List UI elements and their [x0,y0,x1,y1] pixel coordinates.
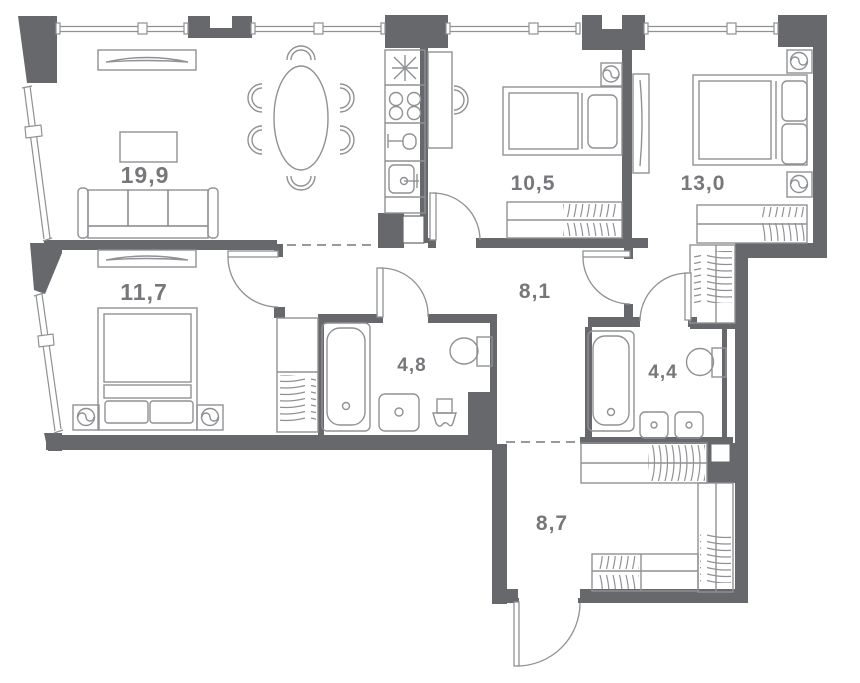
room-living [78,46,425,238]
wall-interior [44,240,277,250]
wardrobe-icon [592,554,698,591]
toilet-icon [687,348,727,377]
wall-pier [385,15,448,48]
door-icon [430,193,480,240]
door-jamb [578,598,583,603]
bed-icon [98,308,197,430]
tv-console-icon [98,250,196,267]
bidet-icon [433,399,456,426]
wall-entry-left [492,444,507,604]
window-icon [251,23,385,34]
washbasin-icon [379,394,419,431]
door-jamb [624,304,633,317]
nightstand-lamp-icon [787,172,812,197]
bed-icon [693,75,807,165]
room-bedroom-1 [73,250,318,432]
mirror-icon [633,74,649,173]
wall-bathroom2-right-thin [722,328,727,438]
room-label-bathroom-2: 4,4 [648,362,677,383]
door-icon [583,251,630,304]
pier-notch [602,15,622,29]
wall-bathroom1-right [490,323,497,393]
wall-bathroom1-top [318,314,383,323]
bed-icon [503,87,622,155]
wall-kitchen-block [378,213,404,248]
nightstand-lamp-icon [787,50,812,73]
wall-bathroom1-top [428,314,497,323]
nightstand-lamp-icon [601,63,622,86]
toilet-icon [450,337,492,366]
kitchen-sink-icon [389,165,419,193]
hob-burners-icon [390,93,421,120]
wardrobe-icon [277,318,318,432]
nightstand-lamp-icon [73,405,99,430]
wardrobe-icon [698,483,733,592]
window-icon [34,293,63,433]
tv-console-icon [98,50,196,70]
washbasin-icon [675,412,703,438]
wall-bathroom2-top [588,317,640,327]
pier-notch [210,16,232,28]
wardrobe-icon [581,443,707,483]
door-jamb [274,307,285,318]
wall-interior [483,238,622,248]
room-label-bedroom-1: 11,7 [120,279,168,305]
room-bathroom-2 [588,331,726,438]
room-bedroom-2 [428,52,622,238]
window-icon [446,23,580,34]
door-icon [228,251,278,307]
dining-table-icon [274,66,328,170]
wall-step-right [735,243,827,258]
bathtub-icon [322,323,370,431]
sofa-icon [78,188,218,238]
vent-shaft-icon [468,392,497,435]
wall-outer-right [813,15,827,245]
room-label-bedroom-3: 13,0 [681,172,726,195]
wardrobe-icon [507,202,622,238]
room-bathroom-1 [322,323,492,431]
kitchen-unit [385,50,425,213]
wall-bottom-left [46,435,497,450]
nightstand-lamp-icon [197,405,223,430]
floor-plan: 19,9 11,7 [0,0,860,683]
window-icon [56,23,188,34]
vent-shaft-niche [403,216,424,243]
door-icon [377,268,428,317]
vent-shaft-niche [711,444,730,462]
bathtub-icon [588,331,634,431]
stove-icon [392,55,418,81]
dining-chair-icon [248,46,354,190]
wall-outer-right-lower [735,245,748,602]
room-label-entry-hall: 8,7 [536,512,568,535]
room-label-living: 19,9 [121,162,170,188]
walls [18,15,827,604]
wall-pier-slanted [30,243,62,294]
wall-kitchen-thin [424,213,428,243]
room-label-bathroom-1: 4,8 [397,355,426,376]
floor-plan-drawing: 19,9 11,7 [0,0,860,683]
wall-kitchen [420,45,428,241]
door-icon [640,273,691,321]
washbasin-icon [640,412,668,438]
wardrobe-icon [690,245,735,323]
room-label-hallway: 8,1 [519,280,551,303]
window-icon [22,86,52,241]
wardrobe-icon [697,205,807,243]
wall-pier [18,16,57,83]
wall-bathroom1-left [318,315,324,435]
desk-icon [428,52,452,148]
coffee-table-icon [120,132,177,162]
room-label-bedroom-2: 10,5 [511,172,556,195]
wall-interior [622,48,632,248]
desk-chair-icon [454,86,468,114]
entrance-door-icon [514,602,580,666]
kitchen-faucet-icon [388,134,416,149]
window-icon [644,23,778,34]
wall-niche-bottom [690,323,735,329]
